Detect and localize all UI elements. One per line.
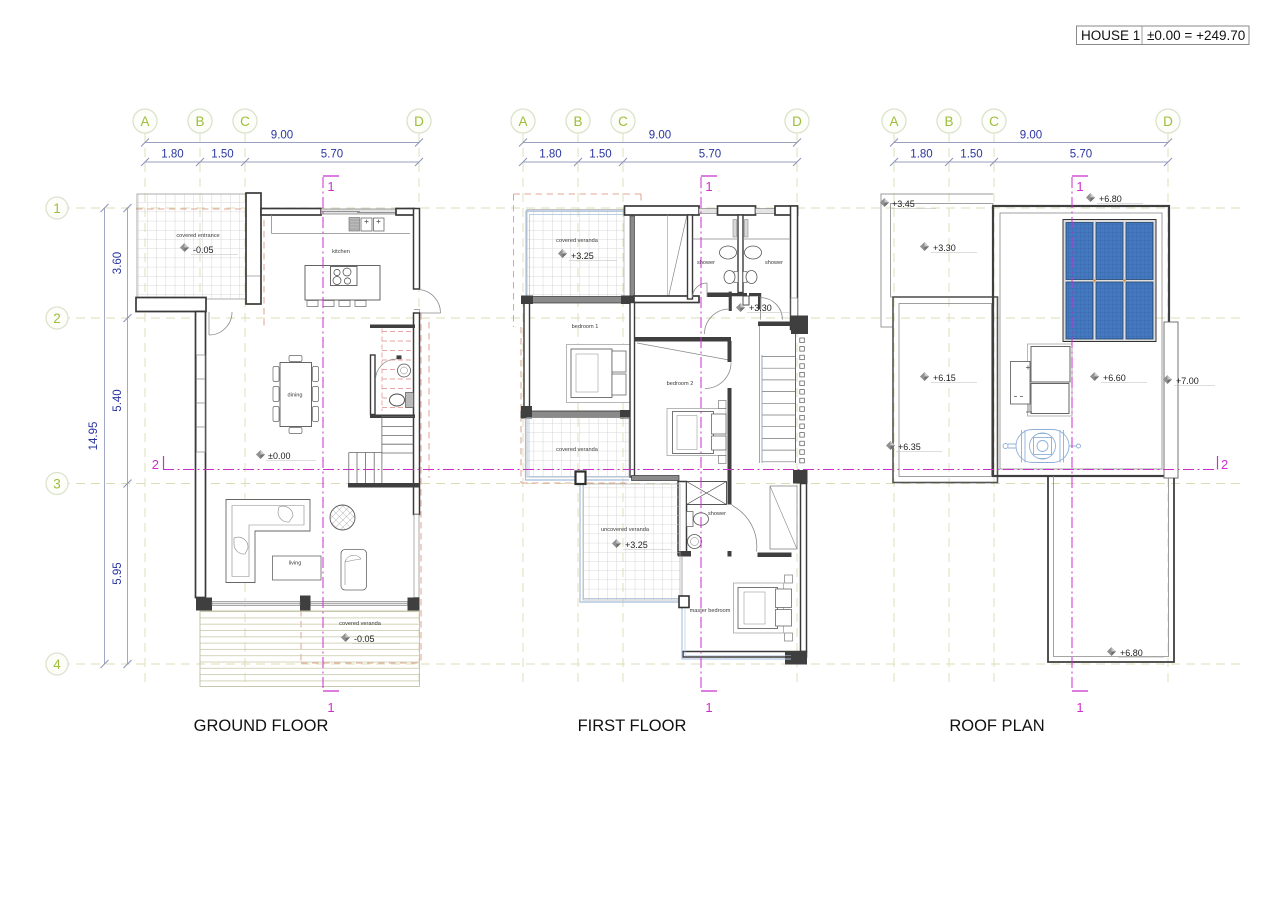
- svg-text:3: 3: [53, 477, 61, 492]
- svg-text:covered veranda: covered veranda: [556, 238, 599, 244]
- svg-text:+3.30: +3.30: [933, 243, 956, 253]
- svg-text:14.95: 14.95: [88, 422, 100, 451]
- svg-text:GROUND FLOOR: GROUND FLOOR: [194, 717, 329, 735]
- svg-text:+3.45: +3.45: [892, 199, 915, 209]
- svg-text:+3.25: +3.25: [571, 251, 594, 261]
- svg-text:living: living: [289, 561, 302, 567]
- svg-text:dining: dining: [288, 393, 303, 399]
- svg-text:3.60: 3.60: [112, 252, 124, 274]
- svg-text:-0.05: -0.05: [354, 634, 375, 644]
- svg-text:master bedroom: master bedroom: [690, 608, 731, 614]
- svg-text:uncovered veranda: uncovered veranda: [601, 527, 650, 533]
- svg-text:±0.00: ±0.00: [268, 451, 290, 461]
- svg-text:+6.15: +6.15: [933, 373, 956, 383]
- svg-text:+6.60: +6.60: [1103, 373, 1126, 383]
- svg-text:shower: shower: [708, 511, 726, 517]
- svg-text:kitchen: kitchen: [332, 249, 350, 255]
- svg-text:2: 2: [53, 311, 61, 326]
- svg-text:covered entrance: covered entrance: [176, 233, 219, 239]
- svg-text:+6.80: +6.80: [1099, 194, 1122, 204]
- svg-text:±0.00 = +249.70: ±0.00 = +249.70: [1147, 28, 1245, 43]
- svg-text:2: 2: [1221, 457, 1228, 472]
- svg-text:bedroom 1: bedroom 1: [572, 324, 599, 330]
- svg-text:FIRST FLOOR: FIRST FLOOR: [578, 717, 687, 735]
- svg-text:-0.05: -0.05: [193, 245, 214, 255]
- svg-text:4: 4: [53, 657, 61, 672]
- svg-text:1: 1: [53, 201, 61, 216]
- svg-text:5.95: 5.95: [112, 562, 124, 584]
- svg-text:shower: shower: [765, 260, 783, 266]
- svg-text:covered veranda: covered veranda: [339, 621, 382, 627]
- svg-text:5.40: 5.40: [112, 389, 124, 411]
- svg-text:covered veranda: covered veranda: [556, 447, 599, 453]
- svg-text:ROOF PLAN: ROOF PLAN: [949, 717, 1044, 735]
- svg-text:+3.25: +3.25: [625, 540, 648, 550]
- svg-text:shower: shower: [697, 260, 715, 266]
- svg-text:HOUSE 1: HOUSE 1: [1081, 28, 1140, 43]
- svg-text:bedroom 2: bedroom 2: [667, 381, 694, 387]
- svg-text:+7.00: +7.00: [1176, 376, 1199, 386]
- svg-text:2: 2: [152, 457, 159, 472]
- svg-text:+6.35: +6.35: [898, 442, 921, 452]
- svg-text:+3.30: +3.30: [749, 303, 772, 313]
- svg-text:+6.80: +6.80: [1120, 648, 1143, 658]
